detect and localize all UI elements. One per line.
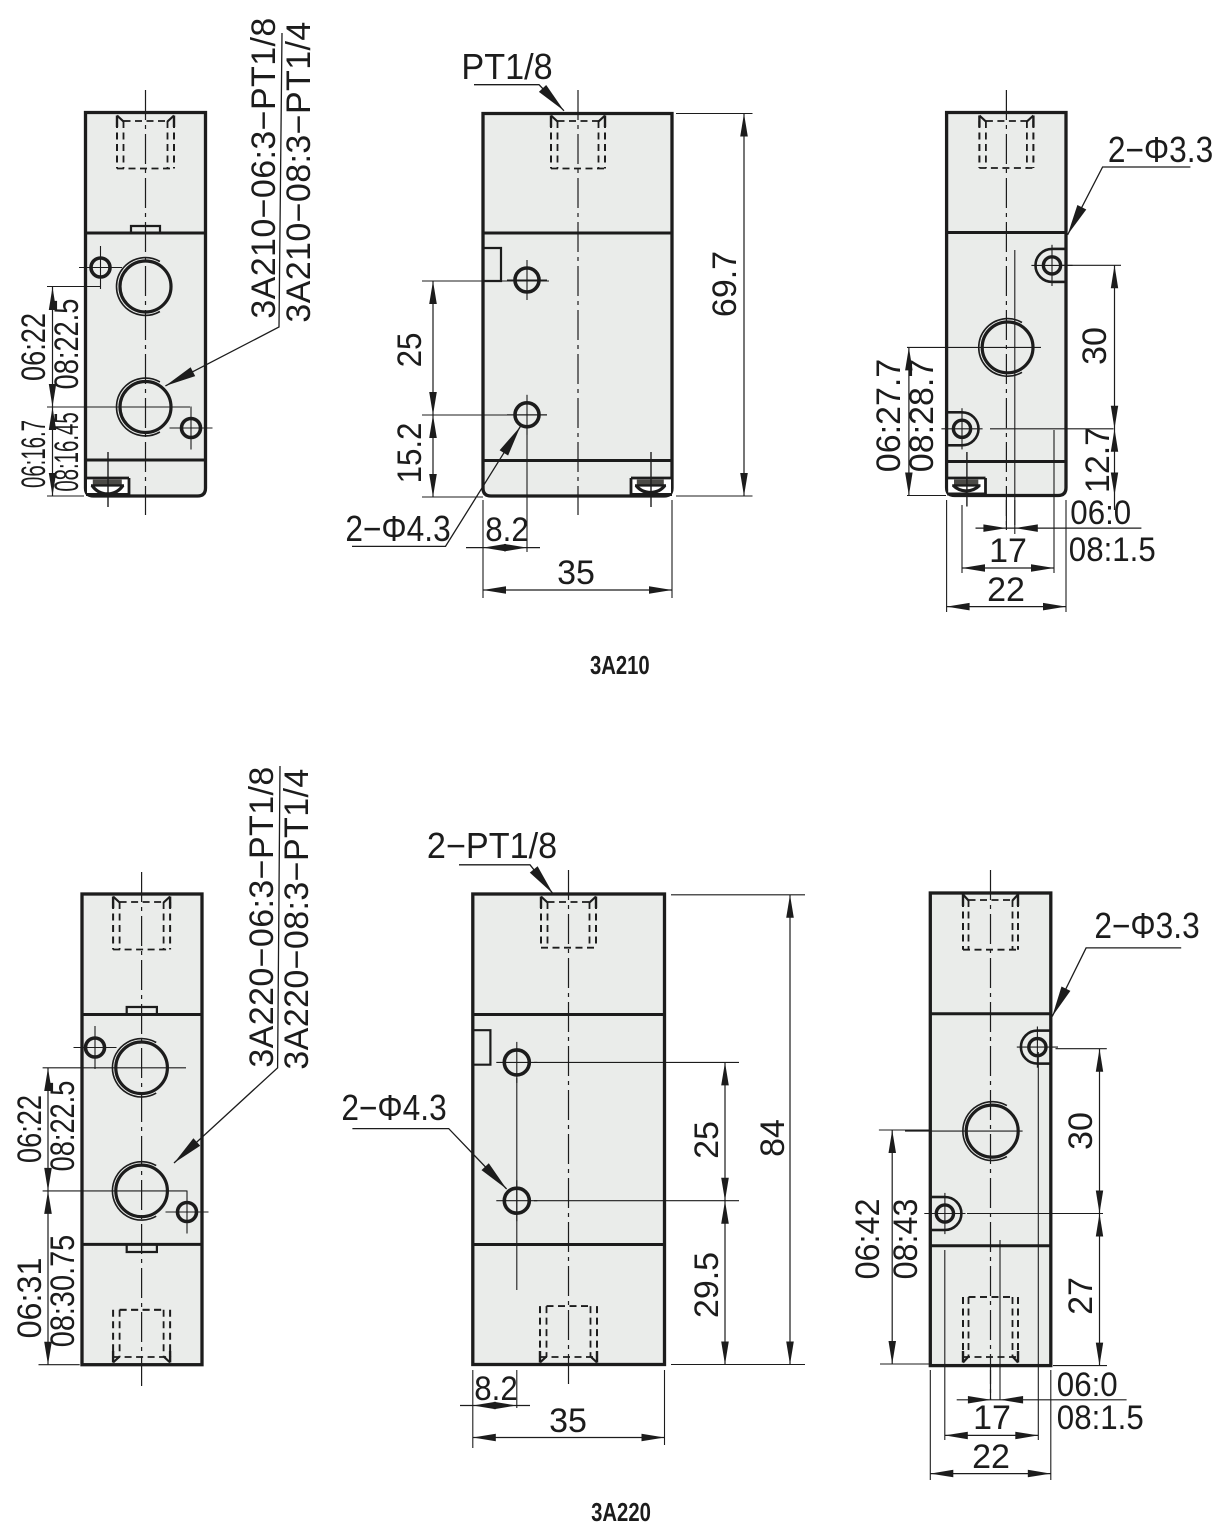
svg-text:30: 30 (1076, 327, 1114, 365)
svg-text:2−Φ3.3: 2−Φ3.3 (1108, 130, 1213, 170)
svg-text:25: 25 (688, 1121, 726, 1159)
svg-text:22: 22 (972, 1438, 1010, 1476)
svg-text:08:1.5: 08:1.5 (1057, 1398, 1144, 1437)
svg-text:30: 30 (1062, 1112, 1100, 1150)
svg-text:2−Φ4.3: 2−Φ4.3 (341, 1088, 446, 1128)
svg-text:3A220−08:3−PT1/4: 3A220−08:3−PT1/4 (278, 768, 316, 1069)
svg-text:69.7: 69.7 (706, 251, 744, 317)
svg-text:35: 35 (557, 554, 595, 592)
svg-text:2−Φ4.3: 2−Φ4.3 (345, 509, 450, 549)
svg-text:08:43: 08:43 (887, 1199, 925, 1280)
svg-text:2−PT1/8: 2−PT1/8 (427, 826, 557, 866)
svg-text:06:0: 06:0 (1070, 493, 1131, 532)
svg-text:3A210−08:3−PT1/4: 3A210−08:3−PT1/4 (280, 21, 318, 322)
svg-text:84: 84 (754, 1119, 792, 1157)
svg-text:35: 35 (549, 1402, 587, 1440)
svg-text:3A210−06:3−PT1/8: 3A210−06:3−PT1/8 (245, 17, 283, 318)
svg-text:PT1/8: PT1/8 (461, 47, 552, 87)
svg-text:22: 22 (987, 571, 1025, 609)
svg-text:08:30.75: 08:30.75 (43, 1235, 82, 1347)
svg-text:2−Φ3.3: 2−Φ3.3 (1094, 906, 1199, 946)
svg-text:8.2: 8.2 (474, 1369, 517, 1408)
svg-text:27: 27 (1062, 1277, 1100, 1315)
svg-text:29.5: 29.5 (688, 1252, 726, 1318)
svg-text:17: 17 (973, 1399, 1011, 1437)
svg-text:06:42: 06:42 (849, 1199, 887, 1280)
svg-text:8.2: 8.2 (485, 510, 528, 549)
svg-text:12.7: 12.7 (1079, 427, 1117, 493)
svg-text:3A220: 3A220 (591, 1498, 651, 1527)
svg-text:25: 25 (390, 333, 429, 368)
svg-text:08:16.45: 08:16.45 (48, 412, 86, 491)
svg-text:15.2: 15.2 (390, 423, 429, 484)
svg-text:17: 17 (989, 532, 1027, 570)
svg-text:08:1.5: 08:1.5 (1069, 530, 1156, 569)
svg-text:08:28.7: 08:28.7 (903, 359, 941, 472)
svg-text:3A220−06:3−PT1/8: 3A220−06:3−PT1/8 (243, 766, 281, 1067)
svg-text:06:16.7: 06:16.7 (15, 420, 53, 488)
svg-text:08:22.5: 08:22.5 (43, 1081, 82, 1172)
svg-text:3A210: 3A210 (590, 651, 650, 680)
svg-text:08:22.5: 08:22.5 (47, 299, 86, 390)
